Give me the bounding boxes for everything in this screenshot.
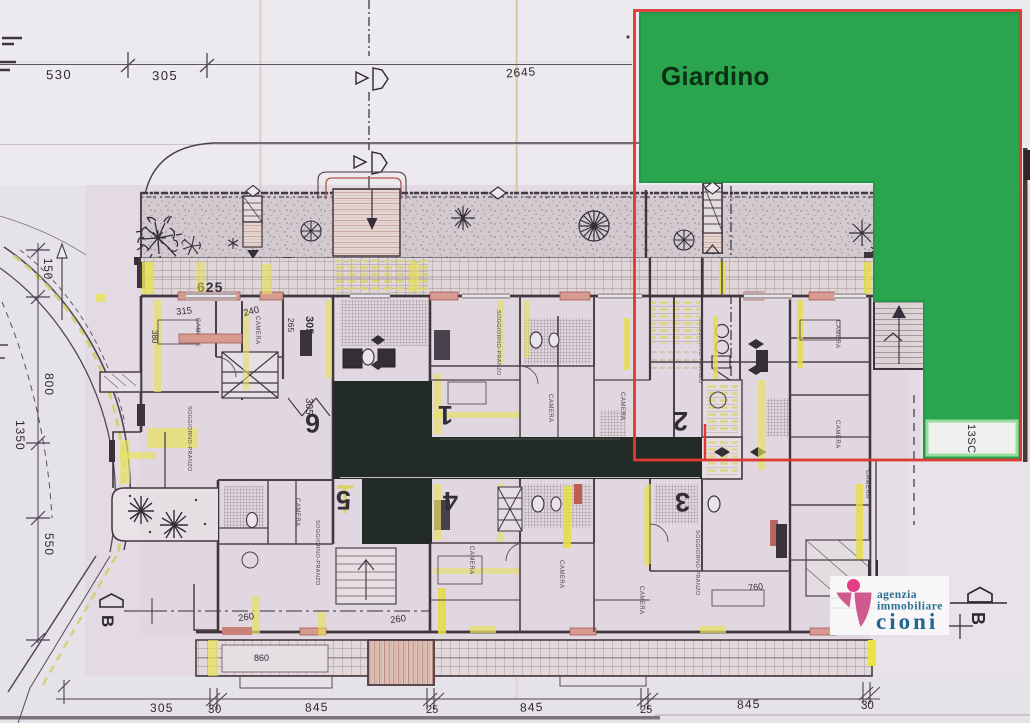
svg-text:845: 845 <box>305 700 329 715</box>
svg-text:150: 150 <box>41 258 53 280</box>
svg-text:agenzia: agenzia <box>877 589 917 601</box>
svg-text:860: 860 <box>254 653 269 663</box>
svg-text:845: 845 <box>737 697 761 712</box>
svg-text:13SC: 13SC <box>965 424 977 454</box>
svg-text:550: 550 <box>42 533 56 556</box>
svg-text:305: 305 <box>150 701 174 715</box>
svg-text:25: 25 <box>426 704 438 716</box>
svg-text:25: 25 <box>640 704 652 716</box>
svg-text:Giardino: Giardino <box>661 61 770 91</box>
svg-text:800: 800 <box>42 373 56 396</box>
svg-text:30: 30 <box>208 704 222 716</box>
svg-text:cioni: cioni <box>876 609 938 634</box>
svg-text:530: 530 <box>46 67 72 82</box>
svg-text:305: 305 <box>152 68 178 83</box>
svg-text:30: 30 <box>861 700 874 712</box>
svg-text:845: 845 <box>520 700 544 715</box>
svg-text:B: B <box>968 612 988 625</box>
svg-text:1350: 1350 <box>13 420 27 451</box>
svg-text:B: B <box>98 615 117 627</box>
svg-text:2645: 2645 <box>506 64 537 80</box>
